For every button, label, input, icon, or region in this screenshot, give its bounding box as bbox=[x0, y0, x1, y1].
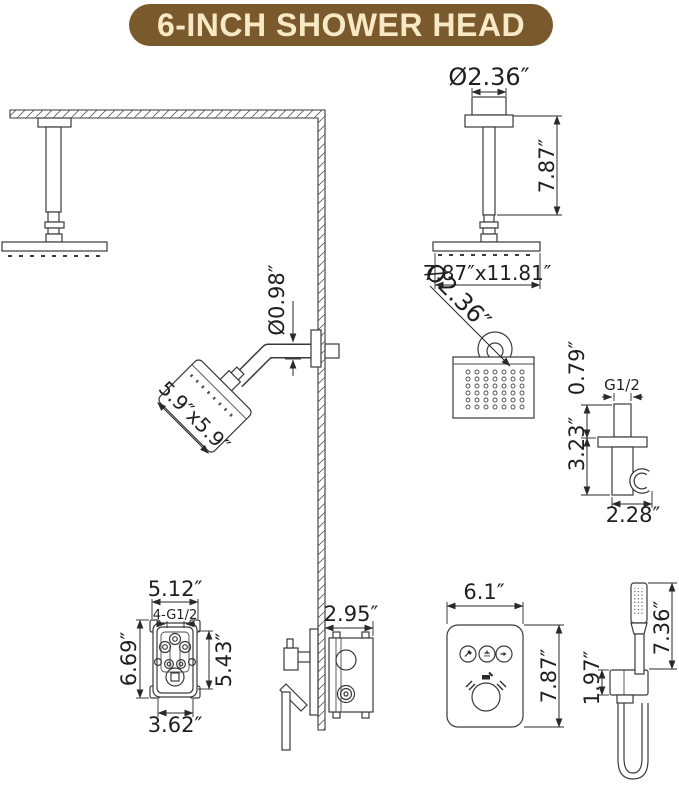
trim-plate: 6.1″ 7.87″ bbox=[447, 580, 564, 727]
dim-wand-length: 7.36″ bbox=[648, 583, 677, 669]
hand-shower: 7.36″ 1.97″ bbox=[580, 583, 677, 779]
dim-bracket-height: 1.97″ bbox=[580, 651, 609, 706]
technical-drawing: Ø2.36″ 7.87″ 7.87″x11.81″ bbox=[0, 0, 679, 789]
wall-shower-head: 5.9″x5.9″ Ø0.98″ bbox=[151, 264, 339, 460]
dim-arm-length: 7.87″ bbox=[497, 116, 562, 215]
rough-in-valve: 5.12″ 4-G1/2 6.69″ 5.43″ bbox=[117, 577, 236, 737]
dim-label-arm-length: 7.87″ bbox=[535, 139, 559, 194]
dim-label-valve-ports: 4-G1/2 bbox=[153, 608, 197, 623]
dim-holder-depth: 2.28″ bbox=[606, 491, 661, 527]
dim-label-valve-body-height: 5.43″ bbox=[212, 633, 236, 688]
dim-valve-depth: 2.95″ bbox=[324, 602, 379, 636]
dim-label-arm-diameter: Ø0.98″ bbox=[265, 264, 289, 335]
ceiling-shower-detail: Ø2.36″ 7.87″ 7.87″x11.81″ bbox=[423, 63, 562, 289]
dim-flange-diameter: Ø2.36″ bbox=[448, 63, 529, 96]
hand-shower-holder: G1/2 0.79″ 3.23″ 2.28″ bbox=[565, 341, 660, 527]
dim-label-valve-overall-height: 6.69″ bbox=[117, 632, 141, 687]
dim-label-trim-height: 7.87″ bbox=[537, 649, 561, 704]
dim-label-bracket-height: 1.97″ bbox=[580, 651, 604, 706]
product-dimension-diagram: 6-INCH SHOWER HEAD bbox=[0, 0, 679, 789]
valve-side-view: 2.95″ bbox=[280, 602, 378, 750]
dim-holder-thread: G1/2 bbox=[602, 376, 643, 401]
dim-valve-body-height: 5.43″ bbox=[198, 631, 236, 689]
dim-label-holder-body: 3.23″ bbox=[565, 417, 589, 472]
dim-label-wand-length: 7.36″ bbox=[650, 601, 674, 656]
dim-trim-width: 6.1″ bbox=[447, 580, 523, 624]
ceiling-shower-scene bbox=[2, 118, 107, 256]
dim-label-holder-thread: G1/2 bbox=[604, 376, 640, 394]
dim-valve-overall-height: 6.69″ bbox=[117, 620, 149, 698]
dim-valve-bottom-width: 3.62″ bbox=[148, 699, 203, 737]
dim-label-valve-depth: 2.95″ bbox=[324, 602, 379, 626]
dim-label-valve-top-width: 5.12″ bbox=[148, 577, 203, 601]
dim-trim-height: 7.87″ bbox=[524, 625, 564, 727]
dim-label-flange-diameter: Ø2.36″ bbox=[448, 63, 529, 91]
dim-label-holder-depth: 2.28″ bbox=[606, 503, 661, 527]
dim-label-valve-bottom-width: 3.62″ bbox=[148, 713, 203, 737]
dim-label-trim-width: 6.1″ bbox=[463, 580, 504, 604]
dim-arm-diameter: Ø0.98″ bbox=[265, 264, 301, 376]
dim-label-holder-inlet: 0.79″ bbox=[565, 341, 589, 396]
dim-holder-heights: 0.79″ 3.23″ bbox=[565, 341, 612, 495]
